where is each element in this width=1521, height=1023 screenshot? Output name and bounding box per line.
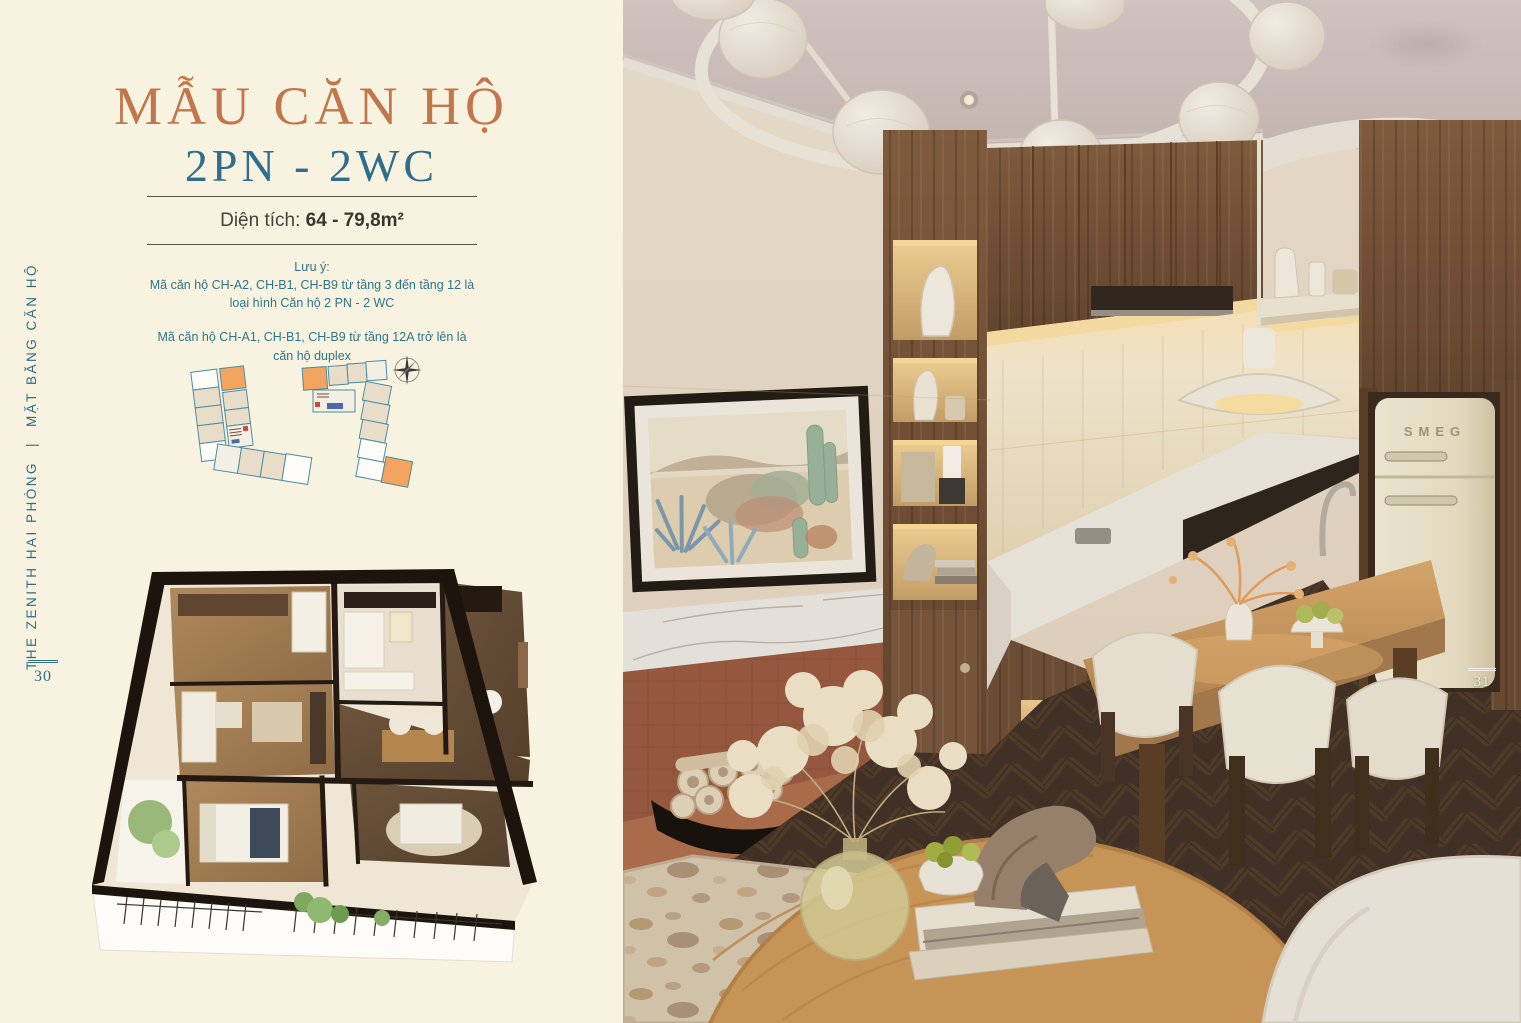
page-title: MẪU CĂN HỘ xyxy=(0,78,623,135)
fridge-brand-logo: SMEG xyxy=(1404,424,1466,439)
page-number-right: 31 xyxy=(1468,668,1496,691)
siteplan-unit-highlight xyxy=(220,366,247,391)
fridge-handle-bottom xyxy=(1385,496,1457,505)
interior-photo: SMEG xyxy=(623,0,1521,1023)
note1-line2: loại hình Căn hộ 2 PN - 2 WC xyxy=(110,294,514,312)
fridge-handle-top xyxy=(1385,452,1447,461)
right-page: SMEG xyxy=(623,0,1521,1023)
notes-heading: Lưu ý: xyxy=(110,258,514,276)
title-block: MẪU CĂN HỘ 2PN - 2WC xyxy=(0,78,623,192)
siteplan-diagram xyxy=(185,350,425,515)
floorplan-3d-render xyxy=(82,552,552,987)
notes-block: Lưu ý: Mã căn hộ CH-A2, CH-B1, CH-B9 từ … xyxy=(110,258,514,365)
area-value: 64 - 79,8m² xyxy=(306,210,404,231)
watermark xyxy=(1370,22,1482,66)
area-label: Diện tích: xyxy=(220,210,300,231)
compass-icon xyxy=(392,355,422,385)
area-line: Diện tích: 64 - 79,8m² xyxy=(220,210,404,231)
siteplan-unit-highlight xyxy=(302,367,327,391)
decor-candle xyxy=(943,446,961,480)
left-page: THE ZENITH HAI PHÒNG | MẶT BẰNG CĂN HỘ 3… xyxy=(0,0,623,1023)
siteplan-block-left xyxy=(191,366,312,485)
brochure-spread: THE ZENITH HAI PHÒNG | MẶT BẰNG CĂN HỘ 3… xyxy=(0,0,1521,1023)
sidebar-separator: | xyxy=(24,441,39,447)
shelf-column xyxy=(883,130,987,754)
area-block: Diện tích: 64 - 79,8m² xyxy=(147,196,477,245)
note2-line1: Mã căn hộ CH-A1, CH-B1, CH-B9 từ tầng 12… xyxy=(110,328,514,346)
sidebar-project-label: THE ZENITH HAI PHÒNG xyxy=(24,461,39,670)
siteplan-unit-highlight xyxy=(381,457,412,488)
cooking-pot xyxy=(1075,528,1111,544)
page-subtitle: 2PN - 2WC xyxy=(0,139,623,192)
framed-artwork xyxy=(624,386,876,592)
sidebar-vertical-text: THE ZENITH HAI PHÒNG | MẶT BẰNG CĂN HỘ xyxy=(24,340,39,670)
decor-box xyxy=(901,452,935,502)
sidebar-section-label: MẶT BẰNG CĂN HỘ xyxy=(24,263,39,427)
page-number-left: 30 xyxy=(28,660,58,686)
note1-line1: Mã căn hộ CH-A2, CH-B1, CH-B9 từ tầng 3 … xyxy=(110,276,514,294)
fruit-bowl xyxy=(919,836,983,895)
